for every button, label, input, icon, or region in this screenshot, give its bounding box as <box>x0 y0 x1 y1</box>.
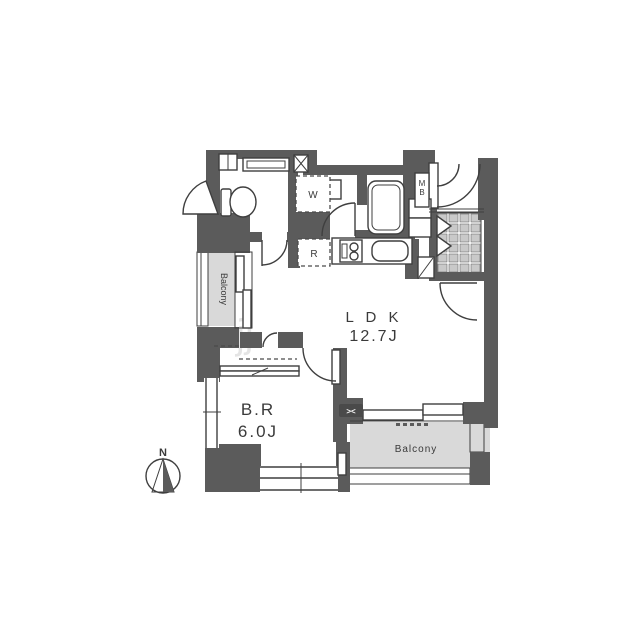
refrigerator-space: R <box>298 239 330 266</box>
washer-label: W <box>308 190 318 201</box>
balcony-partition-label: >< <box>346 407 356 416</box>
ldk-size-label: 12.7J <box>349 328 398 345</box>
bedroom-label: B.R <box>241 400 275 419</box>
washer-space: W <box>296 176 330 212</box>
window-bedroom-south <box>260 463 338 493</box>
ldk-label: L D K <box>346 309 403 326</box>
window-x <box>294 155 308 172</box>
closet-top-opening <box>262 332 278 348</box>
entrance-step <box>418 257 434 278</box>
toilet <box>221 187 256 217</box>
compass-north-label: N <box>159 447 167 459</box>
washroom-shelf <box>243 158 289 171</box>
meter-box: M B <box>415 173 429 207</box>
floor-plan-drawing: jj Balcony Balcony <box>0 0 640 640</box>
refrigerator-label: R <box>310 249 317 260</box>
balcony-left-label: Balcony <box>219 273 229 306</box>
balcony-partition: >< <box>339 404 363 417</box>
meter-box-letter-m: M <box>419 179 426 188</box>
balcony-south-label: Balcony <box>395 444 438 455</box>
wall-slot <box>338 453 346 475</box>
window-bedroom-west <box>203 378 221 448</box>
floor-plan-page: jj Balcony Balcony <box>0 0 640 640</box>
bathtub <box>368 181 404 234</box>
meter-box-letter-b: B <box>419 188 424 197</box>
bedroom-size-label: 6.0J <box>238 422 278 441</box>
background <box>0 0 640 640</box>
kitchen-counter <box>332 238 412 264</box>
